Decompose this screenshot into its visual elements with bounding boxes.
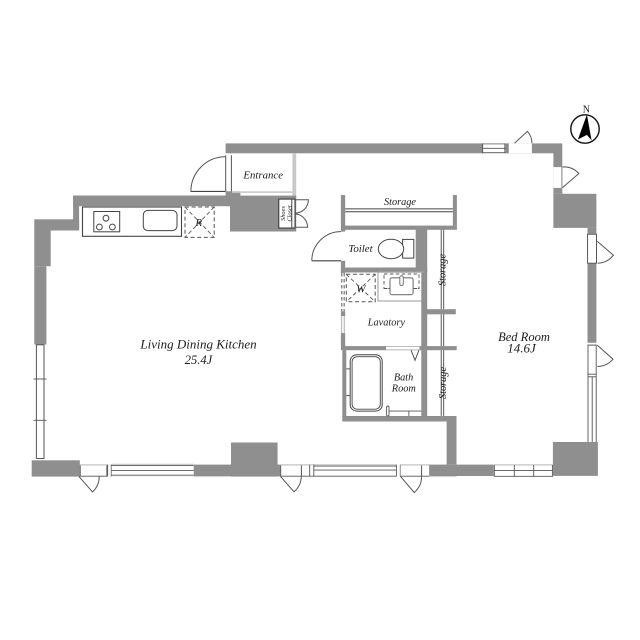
svg-text:W: W (356, 283, 366, 295)
svg-text:Bath: Bath (394, 373, 413, 384)
svg-text:R: R (194, 217, 202, 229)
svg-text:Room: Room (391, 383, 416, 394)
svg-text:Closet: Closet (287, 205, 294, 222)
svg-text:N: N (583, 105, 590, 116)
svg-text:Storage: Storage (438, 367, 449, 399)
svg-text:Storage: Storage (384, 197, 416, 208)
svg-text:Lavatory: Lavatory (367, 318, 406, 329)
svg-text:14.6J: 14.6J (507, 341, 537, 356)
svg-text:Living Dining Kitchen: Living Dining Kitchen (139, 336, 256, 351)
svg-text:Storage: Storage (437, 254, 448, 286)
svg-text:Toilet: Toilet (348, 243, 373, 255)
svg-text:25.4J: 25.4J (185, 353, 214, 367)
svg-text:Entrance: Entrance (242, 170, 283, 182)
